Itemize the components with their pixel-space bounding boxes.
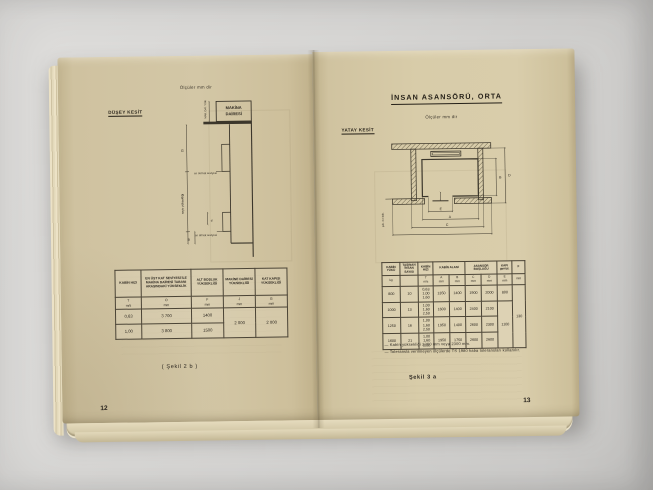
svg-text:E: E	[440, 207, 443, 211]
svg-text:en üst kat seviyesi: en üst kat seviyesi	[194, 171, 217, 175]
cab-top-position	[222, 144, 230, 171]
svg-text:D: D	[508, 173, 511, 177]
table-row: 1000 13 1,00 1,60 2,50 1600 1400 2400 21…	[382, 300, 525, 318]
right-page: İNSAN ASANSÖRÜ, ORTA Ölçüler mm dir YATA…	[312, 48, 579, 420]
horizontal-section-diagram: B D E A C şek. 4 e bak.	[378, 130, 515, 246]
right-dimension-table: KABİN YÜKÜ TAŞINAN İNSAN SAYISI KABİN HI…	[381, 260, 526, 350]
machine-floor-slab	[203, 122, 251, 123]
svg-text:d: d	[211, 218, 213, 222]
svg-text:G: G	[181, 149, 184, 153]
svg-text:B: B	[188, 238, 191, 242]
cabin-outline	[422, 159, 479, 197]
svg-text:seyir yüksekliği: seyir yüksekliği	[180, 193, 184, 214]
svg-text:en alt kat seviyesi: en alt kat seviyesi	[195, 233, 218, 237]
counterweight	[431, 151, 461, 156]
right-units-note: Ölçüler mm dir	[425, 114, 457, 119]
travel-dimension-line	[186, 125, 188, 244]
left-figure-caption: ( Şekil 2 b )	[162, 364, 198, 371]
page-title: İNSAN ASANSÖRÜ, ORTA	[391, 91, 502, 104]
left-page: DÜŞEY KESİT Ölçüler mm dir MAKİNA DAİRES…	[57, 54, 317, 424]
table-row: 0,63 3 700 1400 2 000 2 000	[115, 307, 287, 324]
svg-text:C: C	[446, 223, 449, 227]
shaft-left-wall	[229, 124, 231, 243]
bottom-wall-left	[392, 199, 424, 205]
table-note-2: — Toleransla verilmeyen ölçülerde TS 198…	[385, 348, 540, 355]
right-figure-caption: Şekil 3 a	[409, 374, 437, 380]
photo-scene: DÜŞEY KESİT Ölçüler mm dir MAKİNA DAİRES…	[0, 0, 653, 490]
left-units-note: Ölçüler mm dir	[180, 84, 212, 89]
vertical-section-diagram: MAKİNA DAİRESİ MAK. DAİ. YÜK. en üst kat…	[153, 91, 277, 265]
right-section-label: YATAY KESİT	[341, 127, 374, 134]
cab-bottom-position	[223, 212, 231, 231]
shaft-right-wall	[251, 121, 253, 257]
open-booklet: DÜŞEY KESİT Ölçüler mm dir MAKİNA DAİRES…	[53, 46, 584, 431]
bottom-wall-right	[454, 198, 491, 204]
right-page-number: 13	[523, 397, 530, 404]
top-wall	[392, 143, 491, 150]
svg-text:A: A	[449, 215, 452, 219]
svg-text:MAK. DAİ. YÜK.: MAK. DAİ. YÜK.	[202, 99, 207, 118]
svg-text:şek. 4 e bak.: şek. 4 e bak.	[381, 212, 385, 227]
svg-text:DAİRESİ: DAİRESİ	[226, 111, 242, 116]
svg-text:B: B	[499, 175, 502, 179]
left-wall	[411, 149, 417, 201]
left-section-label: DÜŞEY KESİT	[108, 109, 142, 116]
svg-text:MAKİNA: MAKİNA	[226, 105, 242, 110]
left-dimension-table: KABİN HIZI EN ÜST KAT SEVİYESİ İLE MAKİN…	[114, 267, 288, 339]
left-page-number: 12	[100, 405, 107, 412]
